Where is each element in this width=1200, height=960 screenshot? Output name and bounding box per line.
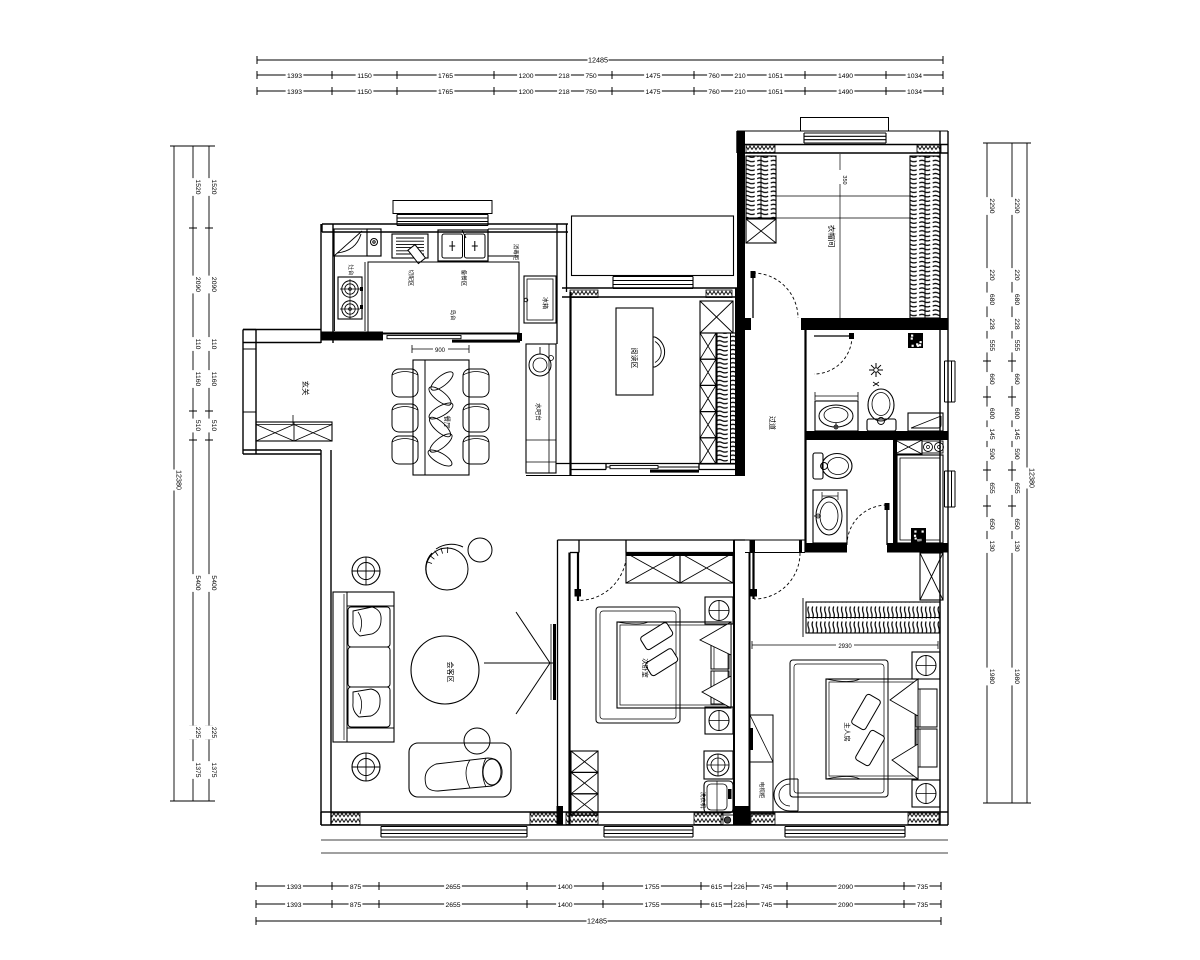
svg-text:1520: 1520 xyxy=(210,179,217,194)
svg-text:680: 680 xyxy=(988,294,995,306)
svg-text:1490: 1490 xyxy=(838,89,853,96)
svg-text:岛台: 岛台 xyxy=(449,309,457,321)
svg-text:218: 218 xyxy=(558,89,570,96)
svg-text:615: 615 xyxy=(711,884,723,891)
svg-text:12380: 12380 xyxy=(175,470,184,490)
svg-text:225: 225 xyxy=(194,727,201,739)
svg-text:1034: 1034 xyxy=(907,89,922,96)
svg-text:1051: 1051 xyxy=(768,89,783,96)
svg-text:210: 210 xyxy=(734,73,746,80)
svg-text:电视柜: 电视柜 xyxy=(758,782,766,799)
svg-text:615: 615 xyxy=(711,902,723,909)
svg-text:650: 650 xyxy=(1013,518,1020,530)
svg-text:1375: 1375 xyxy=(210,762,217,777)
svg-text:2930: 2930 xyxy=(838,644,852,650)
svg-text:590: 590 xyxy=(1013,448,1020,460)
svg-text:切配区: 切配区 xyxy=(407,270,414,287)
svg-text:220: 220 xyxy=(988,269,995,281)
svg-text:5400: 5400 xyxy=(210,575,217,590)
svg-text:510: 510 xyxy=(194,420,201,432)
svg-text:745: 745 xyxy=(761,902,773,909)
svg-text:衣帽间: 衣帽间 xyxy=(827,225,837,248)
svg-text:2090: 2090 xyxy=(838,884,853,891)
svg-text:5400: 5400 xyxy=(194,575,201,590)
svg-text:555: 555 xyxy=(1013,340,1020,352)
svg-text:1980: 1980 xyxy=(1013,669,1020,684)
svg-text:1393: 1393 xyxy=(287,73,302,80)
svg-text:228: 228 xyxy=(988,318,995,330)
svg-text:1150: 1150 xyxy=(357,73,372,80)
svg-text:1393: 1393 xyxy=(287,89,302,96)
svg-text:650: 650 xyxy=(988,518,995,530)
svg-text:1765: 1765 xyxy=(438,73,453,80)
svg-text:145: 145 xyxy=(1013,428,1020,440)
svg-text:1765: 1765 xyxy=(438,89,453,96)
svg-text:12485: 12485 xyxy=(587,917,607,926)
svg-text:510: 510 xyxy=(210,420,217,432)
svg-text:2290: 2290 xyxy=(988,198,995,213)
svg-text:680: 680 xyxy=(1013,294,1020,306)
svg-text:130: 130 xyxy=(988,540,995,552)
svg-text:1475: 1475 xyxy=(645,89,660,96)
svg-text:1755: 1755 xyxy=(644,884,659,891)
svg-text:225: 225 xyxy=(210,727,217,739)
svg-text:875: 875 xyxy=(350,902,362,909)
svg-text:655: 655 xyxy=(988,482,995,494)
svg-text:745: 745 xyxy=(761,884,773,891)
svg-text:1150: 1150 xyxy=(357,89,372,96)
svg-text:主人房: 主人房 xyxy=(843,722,852,742)
svg-text:餐厅: 餐厅 xyxy=(443,416,452,430)
svg-text:1400: 1400 xyxy=(557,884,572,891)
svg-text:735: 735 xyxy=(917,884,929,891)
svg-text:玄关: 玄关 xyxy=(301,381,311,396)
svg-text:760: 760 xyxy=(708,73,720,80)
svg-text:1375: 1375 xyxy=(194,762,201,777)
svg-text:110: 110 xyxy=(194,339,201,350)
svg-text:145: 145 xyxy=(988,428,995,440)
svg-text:冰箱: 冰箱 xyxy=(541,297,549,309)
svg-text:110: 110 xyxy=(210,339,217,350)
svg-text:660: 660 xyxy=(1013,373,1020,385)
svg-text:次卧室: 次卧室 xyxy=(641,658,650,678)
svg-text:750: 750 xyxy=(585,73,597,80)
svg-text:228: 228 xyxy=(1013,318,1020,330)
svg-text:2090: 2090 xyxy=(194,277,201,292)
svg-text:226: 226 xyxy=(733,902,745,909)
svg-text:1160: 1160 xyxy=(194,372,201,387)
svg-text:1200: 1200 xyxy=(518,73,533,80)
svg-text:590: 590 xyxy=(988,448,995,460)
svg-text:210: 210 xyxy=(734,89,746,96)
svg-text:875: 875 xyxy=(350,884,362,891)
svg-text:1400: 1400 xyxy=(557,902,572,909)
svg-text:1034: 1034 xyxy=(907,73,922,80)
svg-text:1051: 1051 xyxy=(768,73,783,80)
svg-text:消毒柜: 消毒柜 xyxy=(512,244,520,261)
svg-text:1393: 1393 xyxy=(286,884,301,891)
svg-text:2090: 2090 xyxy=(210,277,217,292)
svg-text:600: 600 xyxy=(988,408,995,420)
svg-text:2655: 2655 xyxy=(445,902,460,909)
svg-text:555: 555 xyxy=(988,340,995,352)
svg-text:218: 218 xyxy=(558,73,570,80)
svg-text:水吧台: 水吧台 xyxy=(534,403,542,421)
svg-text:1980: 1980 xyxy=(988,669,995,684)
svg-text:1475: 1475 xyxy=(645,73,660,80)
svg-text:阅读区: 阅读区 xyxy=(630,348,639,369)
svg-text:2290: 2290 xyxy=(1013,198,1020,213)
svg-text:220: 220 xyxy=(1013,269,1020,281)
svg-text:备餐区: 备餐区 xyxy=(460,270,468,287)
svg-text:1160: 1160 xyxy=(210,372,217,387)
svg-text:洗衣机: 洗衣机 xyxy=(699,792,707,809)
svg-text:1755: 1755 xyxy=(644,902,659,909)
svg-text:1520: 1520 xyxy=(194,179,201,194)
svg-text:12380: 12380 xyxy=(1028,468,1037,488)
svg-text:2090: 2090 xyxy=(838,902,853,909)
svg-text:735: 735 xyxy=(917,902,929,909)
svg-text:130: 130 xyxy=(1013,540,1020,552)
svg-text:过道: 过道 xyxy=(768,416,777,430)
svg-text:2655: 2655 xyxy=(445,884,460,891)
svg-text:1200: 1200 xyxy=(518,89,533,96)
svg-text:350: 350 xyxy=(841,175,847,184)
svg-text:会客区: 会客区 xyxy=(446,662,455,683)
svg-text:226: 226 xyxy=(733,884,745,891)
svg-text:1393: 1393 xyxy=(286,902,301,909)
svg-text:900: 900 xyxy=(435,348,446,354)
svg-text:655: 655 xyxy=(1013,482,1020,494)
svg-text:600: 600 xyxy=(1013,408,1020,420)
svg-text:760: 760 xyxy=(708,89,720,96)
svg-text:灶台: 灶台 xyxy=(347,264,355,276)
svg-text:1490: 1490 xyxy=(838,73,853,80)
svg-text:660: 660 xyxy=(988,373,995,385)
svg-text:750: 750 xyxy=(585,89,597,96)
svg-text:12485: 12485 xyxy=(588,56,608,65)
